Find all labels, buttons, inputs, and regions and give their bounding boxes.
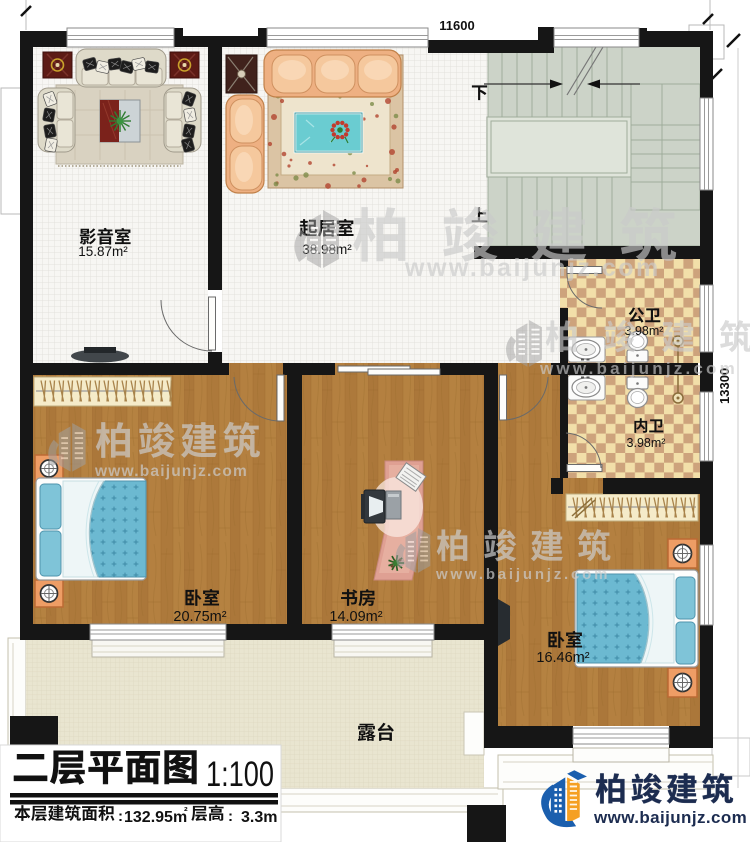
svg-text:3.3m: 3.3m	[241, 809, 277, 826]
svg-text:132.95m: 132.95m	[124, 809, 187, 826]
svg-text:www.baijunjz.com: www.baijunjz.com	[435, 566, 610, 583]
svg-text::: :	[118, 808, 123, 825]
svg-text:1:100: 1:100	[206, 755, 274, 794]
svg-text::: :	[228, 808, 233, 825]
svg-text:www.baijunjz.com: www.baijunjz.com	[539, 359, 738, 378]
svg-text:www.baijunjz.com: www.baijunjz.com	[404, 254, 661, 282]
svg-text:²: ²	[184, 806, 188, 818]
svg-text:11600: 11600	[439, 18, 474, 33]
svg-text:3.98m²: 3.98m²	[627, 436, 666, 450]
svg-text:15.87m²: 15.87m²	[78, 244, 128, 259]
svg-text:www.baijunjz.com: www.baijunjz.com	[94, 463, 248, 480]
svg-text:16.46m²: 16.46m²	[536, 650, 589, 666]
svg-text:14.09m²: 14.09m²	[329, 609, 382, 625]
svg-text:www.baijunjz.com: www.baijunjz.com	[593, 808, 747, 827]
svg-text:20.75m²: 20.75m²	[173, 609, 226, 625]
